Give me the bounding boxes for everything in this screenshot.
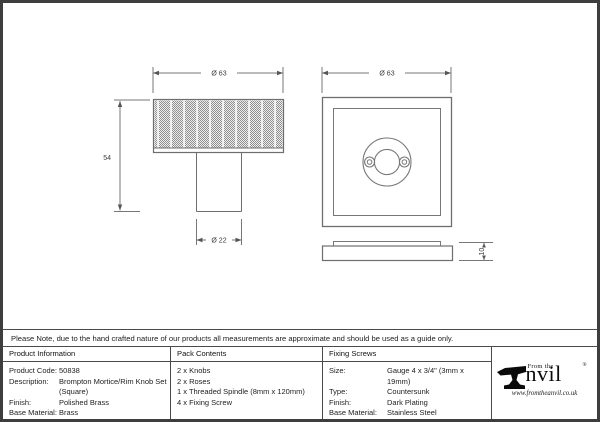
knob-side-view: Ø 63 54	[103, 67, 283, 245]
knob-height-dimension: 54	[103, 100, 150, 212]
rose-thickness-dimension: 10	[459, 243, 493, 261]
table-row: Base Material: Stainless Steel	[329, 408, 489, 419]
list-item: 4 x Fixing Screw	[177, 398, 320, 409]
table-row: Description: Brompton Mortice/Rim Knob S…	[9, 377, 168, 388]
info-table: Product Information Product Code: 50838 …	[3, 347, 597, 419]
rose-side-view: 10	[323, 242, 494, 261]
brand-tagline: From the	[528, 363, 554, 370]
table-row: Finish: Dark Plating	[329, 398, 489, 409]
rose-profile-base	[323, 246, 453, 261]
table-row: Size: Gauge 4 x 3/4" (3mm x 19mm)	[329, 366, 489, 387]
product-datasheet: Ø 63 54	[0, 0, 600, 422]
rose-front-view: Ø 63	[322, 67, 452, 227]
brand-website: www.fromtheanvil.co.uk	[497, 390, 593, 397]
table-row: Product Code: 50838	[9, 366, 168, 377]
knob-stem	[197, 153, 242, 212]
table-row: Finish: Polished Brass	[9, 398, 168, 409]
rose-thickness-label: 10	[479, 248, 486, 256]
knob-height-label: 54	[103, 155, 111, 162]
rose-width-label: Ø 63	[379, 71, 394, 78]
knob-head	[154, 100, 284, 153]
knob-diameter-label: Ø 63	[211, 71, 226, 78]
note-text: Please Note, due to the hand crafted nat…	[11, 334, 453, 343]
registered-mark: ®	[583, 362, 587, 368]
pack-contents-column: Pack Contents 2 x Knobs 2 x Roses 1 x Th…	[171, 347, 323, 419]
anvil-icon	[497, 366, 527, 390]
brand-cell: nvil From the ® www.fromtheanvil.co.uk	[492, 347, 597, 419]
fixing-screws-header: Fixing Screws	[323, 347, 491, 362]
pack-contents-header: Pack Contents	[171, 347, 322, 362]
stem-diameter-label: Ø 22	[211, 238, 226, 245]
list-item: 2 x Roses	[177, 377, 320, 388]
rose-inner-square	[334, 109, 441, 216]
product-information-header: Product Information	[3, 347, 170, 362]
list-item: 2 x Knobs	[177, 366, 320, 377]
knob-diameter-dimension: Ø 63	[153, 67, 283, 93]
list-item: 1 x Threaded Spindle (8mm x 120mm)	[177, 387, 320, 398]
technical-drawing-area: Ø 63 54	[3, 3, 597, 329]
table-row: (Square)	[9, 387, 168, 398]
from-the-anvil-logo: nvil From the ® www.fromtheanvil.co.uk	[497, 363, 593, 403]
table-row: Type: Countersunk	[329, 387, 489, 398]
note-bar: Please Note, due to the hand crafted nat…	[3, 329, 597, 347]
rose-profile-step	[334, 242, 441, 247]
product-information-column: Product Information Product Code: 50838 …	[3, 347, 171, 419]
stem-diameter-dimension: Ø 22	[197, 219, 242, 245]
rose-width-dimension: Ø 63	[322, 67, 451, 93]
table-row: Base Material: Brass	[9, 408, 168, 419]
fixing-screws-column: Fixing Screws Size: Gauge 4 x 3/4" (3mm …	[323, 347, 492, 419]
